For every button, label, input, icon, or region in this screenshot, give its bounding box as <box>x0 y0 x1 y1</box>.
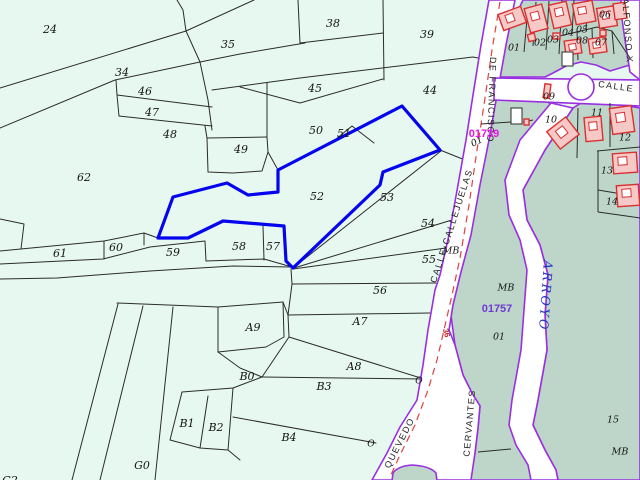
label-46-7: 46 <box>137 85 152 98</box>
label-01-54: 01 <box>493 332 505 343</box>
label-62-24: 62 <box>77 171 91 184</box>
label-54-15: 54 <box>421 217 435 230</box>
cadastral-map-viewport[interactable]: 2434353839454446474849505152535455MB5657… <box>0 0 640 480</box>
label-09-45: 09 <box>543 92 555 103</box>
label-mb-52: MB <box>497 283 515 294</box>
label-15-51: 15 <box>607 415 619 426</box>
label-14-50: 14 <box>606 197 618 208</box>
label-47-8: 47 <box>144 106 159 119</box>
label-mb-53: MB <box>611 447 629 458</box>
label-48-9: 48 <box>162 128 177 141</box>
label-10-46: 10 <box>545 115 557 126</box>
label-b0-28: B0 <box>238 370 254 383</box>
label-08-43: 08 <box>576 36 588 47</box>
label-13-49: 13 <box>601 166 613 177</box>
label-35-2: 35 <box>221 38 235 51</box>
label-06-42: 06 <box>599 10 611 21</box>
label-01739-63: 01739 <box>469 128 500 140</box>
label-g2-34: G2 <box>2 474 18 480</box>
label-34-1: 34 <box>115 66 129 79</box>
label-39-4: 39 <box>420 28 434 41</box>
label-57-19: 57 <box>266 240 280 253</box>
label-01-37: 01 <box>508 43 520 54</box>
label-03-39: 03 <box>547 35 559 46</box>
label-49-10: 49 <box>233 143 248 156</box>
label-o-35: O <box>415 377 423 387</box>
cadastral-map-svg: 2434353839454446474849505152535455MB5657… <box>0 0 640 480</box>
label-a8-27: A8 <box>346 360 362 373</box>
label-01757-64: 01757 <box>482 303 513 315</box>
label-38-3: 38 <box>326 17 340 30</box>
label-45-5: 45 <box>307 82 322 95</box>
label-a7-26: A7 <box>352 315 368 328</box>
label-05-41: 05 <box>576 25 588 36</box>
label-53-14: 53 <box>380 191 394 204</box>
label-50-11: 50 <box>309 124 323 137</box>
label-b2-32: B2 <box>207 421 223 434</box>
label-44-6: 44 <box>422 84 437 97</box>
label-04-40: 04 <box>562 28 574 39</box>
label-b3-29: B3 <box>315 380 331 393</box>
road-culdesac-bulb <box>568 74 594 100</box>
label-11-47: 11 <box>591 108 603 119</box>
label-56-18: 56 <box>373 284 387 297</box>
label-52-13: 52 <box>310 190 324 203</box>
label-12-48: 12 <box>619 133 631 144</box>
label-g0-33: G0 <box>134 459 150 472</box>
label-a9-25: A9 <box>245 321 261 334</box>
label-58-20: 58 <box>232 240 246 253</box>
label-b1-31: B1 <box>178 417 194 430</box>
label-o-36: O <box>367 440 375 450</box>
label-60-22: 60 <box>109 241 123 254</box>
label-59-21: 59 <box>166 246 180 259</box>
label-07-44: 07 <box>595 38 608 49</box>
label-02-38: 02 <box>534 38 546 49</box>
label-51-12: 51 <box>337 127 351 140</box>
label-61-23: 61 <box>53 247 67 260</box>
label-24-0: 24 <box>42 23 57 36</box>
label-b4-30: B4 <box>280 431 296 444</box>
